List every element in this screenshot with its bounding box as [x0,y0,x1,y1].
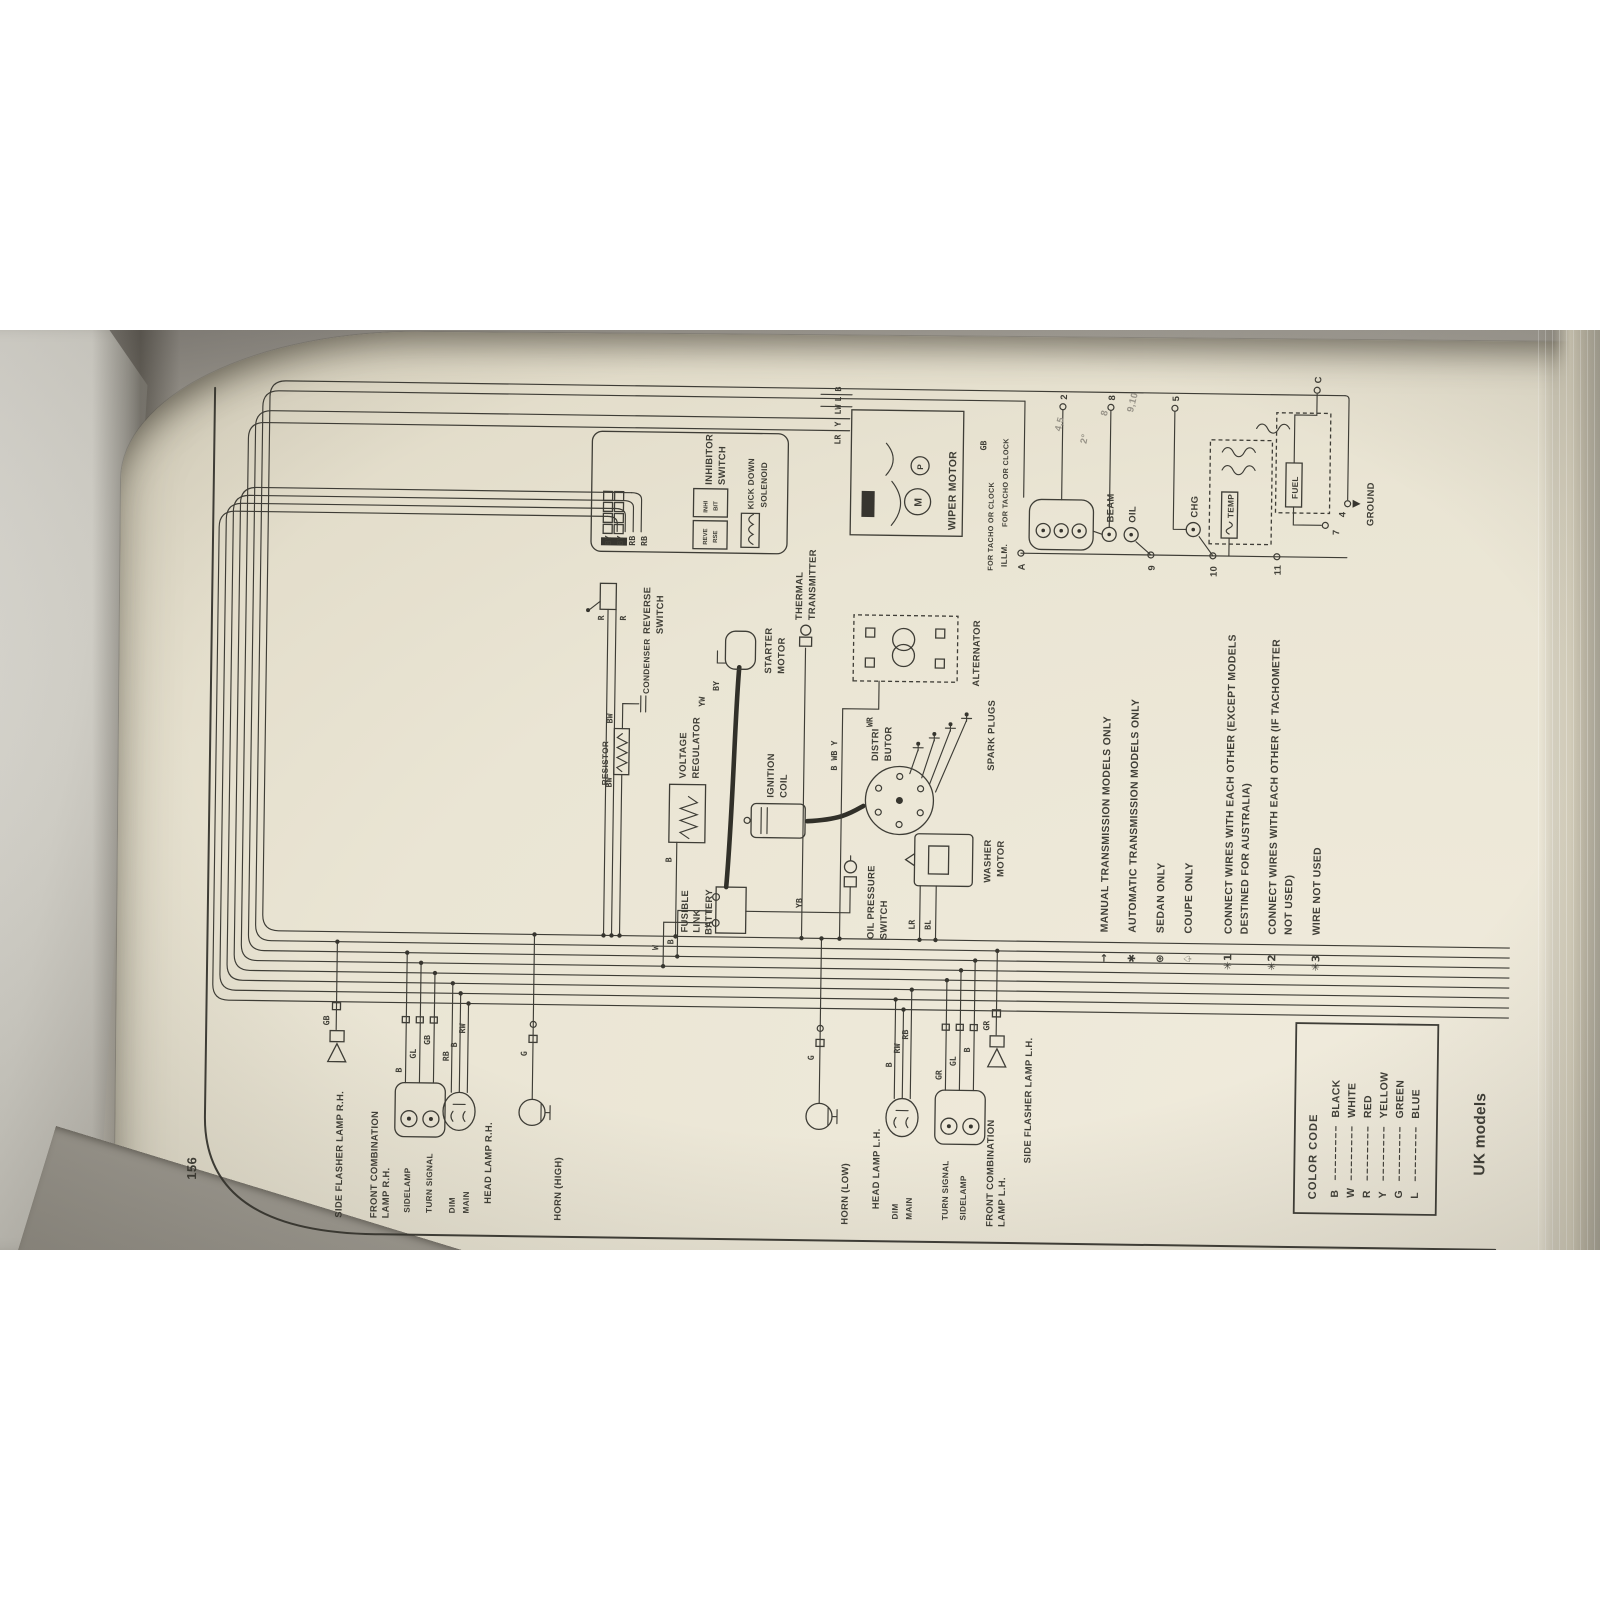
ignition-coil-icon [751,803,805,838]
reverse-switch-label2: SWITCH [654,595,666,634]
distributor-label2: BUTOR [882,726,893,761]
footer-uk-models: UK models [1471,1093,1489,1176]
wire-code: GR [981,1021,991,1031]
battery-plus: + [703,924,712,929]
condenser-label: CONDENSER [642,638,652,694]
washer-motor-label: WASHER [981,839,993,882]
notes-block: → MANUAL TRANSMISSION MODELS ONLY ✱ AUTO… [1098,632,1327,971]
code-y: Y [1378,1191,1389,1198]
annotation: 9,10 [1125,391,1141,413]
code-g: G [1394,1190,1405,1199]
wire-code: W [650,945,660,950]
wiper-connector [861,491,874,517]
main-rh-label: MAIN [462,1191,471,1213]
note-automatic: AUTOMATIC TRANSMISSION MODELS ONLY [1128,699,1142,933]
front-combination-lamp-rh: FRONT COMBINATION LAMP R.H. SIDELAMP TUR… [368,950,448,1219]
wire-code: GR [934,1070,944,1080]
instrument-cluster: FOR TACHO OR CLOCK ILLM. FOR TACHO OR CL… [977,371,1378,579]
pin-text: INHI [703,500,709,512]
turn-signal-rh-label: TURN SIGNAL [425,1153,435,1213]
starter-motor-icon [725,631,756,669]
side-flasher-rh-label: SIDE FLASHER LAMP R.H. [333,1091,346,1218]
starter-motor: STARTER MOTOR YW BY [697,627,787,708]
name-blue: BLUE [1411,1089,1422,1119]
thermal-transmitter-label: THERMAL [793,572,805,620]
main-lh-label: MAIN [905,1197,914,1219]
wire-code: LR [832,435,842,445]
distributor: DISTRI BUTOR SPARK PLUGS [865,698,997,836]
wire-code: LW [833,405,843,415]
name-green: GREEN [1395,1080,1407,1119]
head-lamp-rh: DIM MAIN HEAD LAMP R.H. RB B RW [439,981,496,1214]
note-sedan: SEDAN ONLY [1156,862,1168,933]
washer-motor: LR BL WASHER MOTOR [904,834,1006,944]
reverse-switch-icon [600,583,616,609]
alternator-icon [853,615,958,682]
color-code-title: COLOR CODE [1307,1113,1320,1199]
wire-code: R [618,616,628,621]
code-w: W [1346,1188,1357,1198]
wire-code: RW [457,1023,467,1033]
ignition-coil-label: IGNITION [764,753,776,798]
battery-icon [716,887,747,933]
wire-code: YW [697,697,707,707]
thermal-transmitter-label2: TRANSMITTER [806,549,818,620]
inhibitor-switch-label2: SWITCH [716,446,728,485]
terminal-8: 8 [1106,395,1117,401]
front-comb-rh-label2: LAMP R.H. [380,1167,392,1218]
wire-code: B [833,387,843,392]
photo-of-manual-page: 156 SIDE FLASHER LAMP R.H. [0,0,1600,1600]
cluster-header2: FOR TACHO OR CLOCK [1000,438,1010,527]
starter-motor-label: STARTER [762,628,774,674]
horn-high: HORN (HIGH) G [517,932,567,1221]
terminal-10: 10 [1208,566,1219,577]
wire-code: B [664,857,674,862]
ground-label: GROUND [1364,482,1376,526]
code-l: L [1410,1192,1421,1199]
wire-code: B WB Y [829,741,839,771]
turn-signal-lh-label: TURN SIGNAL [941,1160,951,1220]
chg-label: CHG [1188,496,1199,518]
dim-rh-label: DIM [448,1197,457,1213]
wire-code: G [806,1055,816,1060]
book-page-edges [1538,330,1600,1250]
page-number: 156 [184,1157,199,1180]
terminal-5: 5 [1170,396,1181,402]
spark-plugs-icon [913,712,972,752]
note-symbol: ✳3 [1310,955,1322,972]
fuel-label: FUEL [1291,476,1300,499]
color-code-box: COLOR CODE B BLACK W WHITE R RED Y YELLO… [1294,1023,1439,1215]
headlamp-icon [886,1098,919,1136]
front-combination-lamp-lh: TURN SIGNAL SIDELAMP FRONT COMBINATION L… [931,958,1010,1227]
wire-code: B [449,1042,459,1047]
wiper-motor-label: WIPER MOTOR [947,451,959,531]
pin-text: RSE [713,531,719,543]
note-coupe: COUPE ONLY [1184,862,1196,933]
wire-code: RW [892,1043,902,1053]
head-lamp-lh: HEAD LAMP L.H. DIM MAIN B RW RB [870,987,920,1220]
front-comb-lh-label2: LAMP L.H. [995,1177,1007,1227]
reverse-pin-box [693,521,727,549]
inhibit-pin-box [693,489,727,517]
cluster-header: FOR TACHO OR CLOCK [986,481,996,570]
wire-code: RB [627,536,637,546]
terminal-2: 2 [1058,394,1069,400]
comb-lamp-icon [935,1090,986,1145]
thermal-transmitter-icon [800,637,812,646]
dim-lh-label: DIM [891,1203,900,1219]
motor-p: P [916,464,925,470]
sidelamp-lh-label: SIDELAMP [959,1175,969,1220]
wire-code: B [962,1047,972,1052]
note-symbol: ✳1 [1222,953,1234,970]
note-symbol: → [1098,953,1110,962]
wire-code: R [596,615,606,620]
wire-code: GL [948,1056,958,1066]
note-symbol: ⊛ [1154,954,1166,963]
wire-code: LR [907,920,917,930]
condenser: CONDENSER [623,638,652,712]
wire-code: RB [900,1030,910,1040]
head-lamp-lh-label: HEAD LAMP L.H. [870,1128,882,1209]
terminal-9: 9 [1146,565,1157,571]
annotation: 2° [1079,433,1092,445]
voltage-regulator-label2: REGULATOR [690,717,702,779]
flasher-icon [988,1049,1006,1067]
kick-down-label2: SOLENOID [759,462,769,508]
fusible-link-label: FUSIBLE [679,890,691,933]
horn-low-label: HORN (LOW) [838,1163,850,1225]
fuel-gauge-bracket [1275,413,1330,514]
wire-code: GB [978,441,988,451]
wire-code: GB [321,1015,331,1025]
wire-code: G [519,1051,529,1056]
pin-text: REVE [703,528,709,544]
code-r: R [1362,1190,1373,1198]
starter-motor-label2: MOTOR [775,637,787,674]
wire-code: B [884,1062,894,1067]
resistor-icon [614,729,630,775]
wire-code: BY [711,681,721,691]
fusible-link-label2: LINK [691,909,702,932]
wire-code: GB [422,1035,432,1045]
alternator-label: ALTERNATOR [970,620,982,687]
note-manual: MANUAL TRANSMISSION MODELS ONLY [1100,716,1114,933]
inhibitor-switch-label: INHIBITOR [703,434,715,485]
washer-motor-label2: MOTOR [994,840,1006,877]
kick-down-label: KICK DOWN [746,458,756,509]
temp-gauge-bracket [1209,440,1272,545]
voltage-regulator-label: VOLTAGE [677,732,689,779]
comb-lamp-icon [395,1082,446,1137]
horn-high-label: HORN (HIGH) [552,1157,564,1221]
horn-low: HORN (LOW) G [803,936,853,1225]
temp-label: TEMP [1226,494,1235,518]
distributor-label: DISTRI [869,728,880,761]
side-flasher-lh-label: SIDE FLASHER LAMP L.H. [1021,1037,1034,1163]
ground-arrow [1353,500,1361,508]
ignition-coil-label2: COIL [777,774,788,798]
note-3: WIRE NOT USED [1312,847,1324,936]
wire-code: B [394,1067,404,1072]
note-symbol: ✳2 [1266,954,1278,971]
wire-code: RB [441,1051,451,1061]
terminal-4: 4 [1336,511,1347,517]
thermal-transmitter: THERMAL TRANSMITTER [788,549,817,941]
wire-code: Y [833,422,843,427]
sidelamp-rh-label: SIDELAMP [403,1167,413,1212]
front-comb-rh-label: FRONT COMBINATION [368,1111,380,1218]
wire-code: L [833,397,843,402]
annotation: 4,5 [1053,416,1067,433]
wiring-diagram: 156 SIDE FLASHER LAMP R.H. [145,335,1528,1250]
cluster-header-illm: ILLM. [1000,544,1009,567]
terminal-c: C [1312,376,1323,383]
wire-code: GL [408,1049,418,1059]
wire-code: BY [615,535,625,545]
wire-code: BL [923,920,933,930]
wire-code: WR [864,717,874,727]
connector-grid [603,491,624,533]
spark-plugs-label: SPARK PLUGS [985,700,997,771]
terminal-a: A [1016,563,1027,570]
name-red: RED [1363,1095,1374,1118]
wire-code: B [665,939,675,944]
note-1b: DESTINED FOR AUSTRALIA) [1240,783,1253,935]
motor-m: M [914,498,925,507]
oil-pressure-switch-icon [844,877,856,887]
note-1a: CONNECT WIRES WITH EACH OTHER (EXCEPT MO… [1224,634,1239,934]
terminal-11: 11 [1272,565,1283,576]
oil-pressure-switch-label: OIL PRESSURE [864,865,876,939]
name-yellow: YELLOW [1379,1072,1391,1119]
note-symbol: ✱ [1126,954,1138,963]
code-b: B [1330,1190,1341,1198]
head-lamp-rh-label: HEAD LAMP R.H. [482,1122,494,1204]
oil-pressure-switch-label2: SWITCH [877,900,889,939]
washer-motor-icon [914,834,973,887]
wiper-motor: LR Y LW L B M P WIPER MOTOR [831,387,964,537]
note-2a: CONNECT WIRES WITH EACH OTHER (IF TACHOM… [1268,639,1283,935]
terminal-7: 7 [1330,529,1341,535]
voltage-regulator-icon [669,784,706,842]
photo-area: 156 SIDE FLASHER LAMP R.H. [0,330,1600,1250]
flasher-icon [328,1044,346,1062]
note-2b: NOT USED) [1284,875,1296,935]
pin-text: BIT [713,501,719,511]
name-black: BLACK [1331,1079,1343,1117]
note-symbol: ♤ [1182,954,1194,964]
name-white: WHITE [1347,1083,1358,1118]
condenser-icon [623,696,646,712]
headlamp-icon [443,1092,476,1130]
wire-code: RB [639,536,649,546]
reverse-switch-label: REVERSE [641,587,653,634]
oil-label: OIL [1126,506,1137,523]
wire-code: BY [603,535,613,545]
